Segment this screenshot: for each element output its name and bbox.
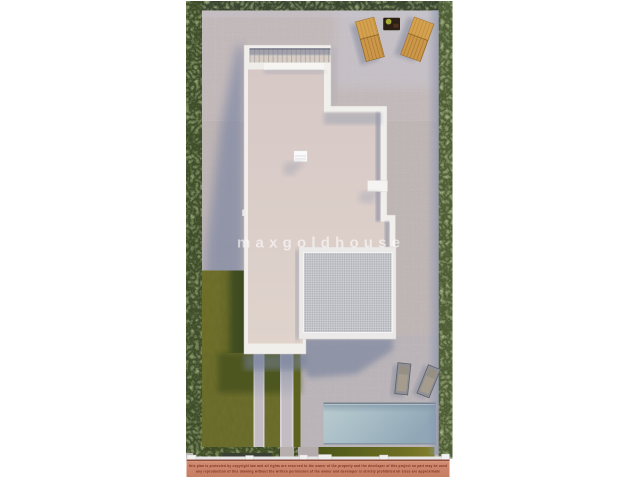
svg-text:any reproduction of this drawi: any reproduction of this drawing without…: [196, 470, 440, 474]
svg-text:this plan is protected by copy: this plan is protected by copyright law …: [189, 464, 447, 468]
svg-text:maxgoldhouse: maxgoldhouse: [237, 235, 405, 252]
